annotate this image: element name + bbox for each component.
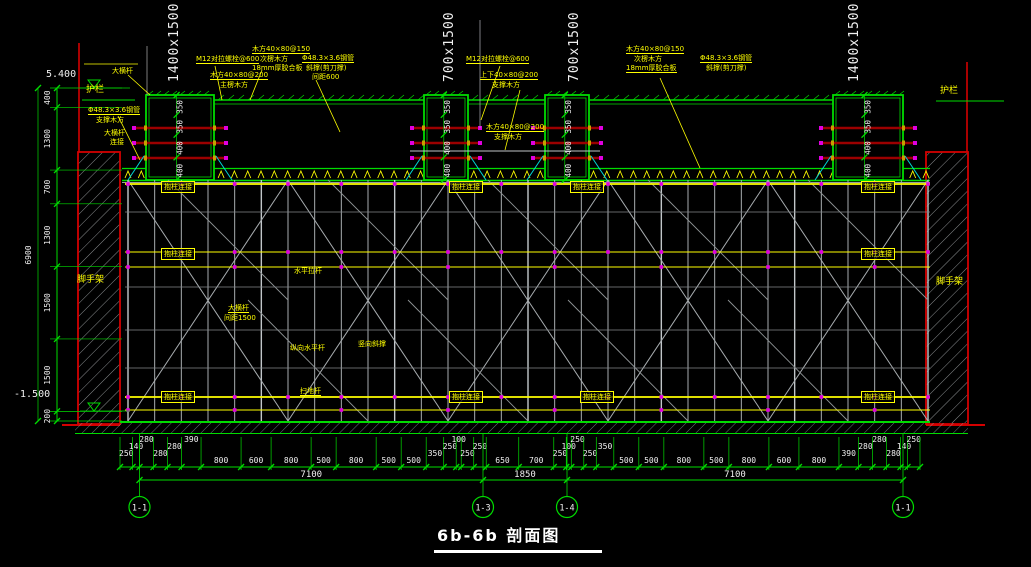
annotation-diag-brace-right: 斜撑(剪刀撑)	[706, 65, 746, 72]
drawing-title: 6b-6b 剖面图	[437, 528, 560, 545]
scaffold-wall-label-left: 脚手架	[77, 276, 104, 285]
dim-text: 350	[864, 100, 873, 114]
dim-text: 500	[644, 456, 659, 465]
dim-text: 600	[249, 456, 264, 465]
dim-text: 350	[564, 100, 573, 114]
guardrail-label-right: 护栏	[940, 87, 958, 96]
dim-text: 800	[812, 456, 827, 465]
annotation-sec-joist-sub-left: 次楞木方	[260, 56, 288, 63]
dim-text: 500	[316, 456, 331, 465]
column-tie-label: 抱柱连接	[449, 181, 483, 193]
title-underline	[434, 550, 602, 553]
annotation-main-joist-left: 木方40×80@200	[210, 72, 268, 80]
dim-text: 650	[495, 456, 510, 465]
dim-text: 350	[176, 100, 185, 114]
column-tie-label: 抱柱连接	[161, 181, 195, 193]
beam-size-label-1: 1400x1500	[168, 8, 182, 82]
dim-text: 1-1	[132, 504, 147, 514]
scaffold-wall-label-right: 脚手架	[936, 278, 963, 287]
dim-text: 700	[43, 180, 52, 195]
column-tie-label: 抱柱连接	[449, 391, 483, 403]
dim-text: 1300	[43, 129, 52, 148]
dim-text: 7100	[724, 470, 746, 480]
beam-size-label-4: 1400x1500	[848, 8, 862, 82]
annotation-plywood-left: 18mm厚胶合板	[252, 65, 303, 72]
column-tie-label: 抱柱连接	[161, 391, 195, 403]
dim-text: 400	[864, 163, 873, 177]
dim-text: 250	[473, 442, 488, 451]
dim-text: 350	[864, 119, 873, 133]
annotation-support-joist-inner: 支撑木方	[494, 134, 522, 141]
annotation-spacing-left: 间距600	[312, 74, 339, 81]
dim-text: 350	[443, 119, 452, 133]
dim-text: 350	[443, 100, 452, 114]
cad-drawing-canvas: 3503504004003503504004003503504004003503…	[0, 0, 1031, 567]
label-steel-pipe-wall: Φ48.3×3.6钢管	[88, 107, 140, 115]
dim-text: 250	[583, 449, 598, 458]
dim-text: 1-1	[895, 504, 910, 514]
annotation-diag-brace-left: 斜撑(剪刀撑)	[306, 65, 346, 72]
dim-text: 390	[184, 435, 199, 444]
column-tie-label: 抱柱连接	[161, 248, 195, 260]
label-big-ledger-wall: 大横杆	[104, 130, 125, 137]
dim-text: 280	[153, 449, 168, 458]
dim-text: 250	[570, 435, 585, 444]
dim-text: 800	[742, 456, 757, 465]
column-tie-label: 抱柱连接	[570, 181, 604, 193]
annotation-main-joist-sub-left: 主楞木方	[220, 82, 248, 89]
column-tie-label: 抱柱连接	[580, 391, 614, 403]
dim-text: 400	[443, 163, 452, 177]
dim-text: 600	[777, 456, 792, 465]
dim-text: 400	[176, 141, 185, 155]
annotation-tie-bolt-mid: M12对拉螺栓@600	[466, 56, 529, 64]
label-vertical-brace: 竖向斜撑	[358, 341, 386, 348]
dim-text: 1500	[43, 365, 52, 384]
annotation-updown-joist-mid: 上下40×80@200	[480, 72, 538, 80]
level-bottom: -1.500	[14, 390, 50, 401]
dim-text: 400	[176, 163, 185, 177]
dim-text: 500	[709, 456, 724, 465]
beam-size-label-2: 700x1500	[443, 8, 457, 82]
dim-text: 500	[406, 456, 421, 465]
dim-text: 1300	[43, 225, 52, 244]
column-tie-label: 抱柱连接	[861, 248, 895, 260]
annotation-steel-pipe-left: Φ48.3×3.6钢管	[302, 55, 354, 63]
annotation-sec-joist-right: 木方40×80@150	[626, 46, 684, 54]
dim-text: 1-4	[559, 504, 574, 514]
dim-text: 250	[907, 435, 922, 444]
dim-text: 6900	[24, 245, 33, 264]
dim-text: 700	[529, 456, 544, 465]
dim-text: 400	[43, 90, 52, 105]
beam-size-label-3: 700x1500	[568, 8, 582, 82]
annotation-support-joist-mid: 支撑木方	[492, 82, 520, 89]
dim-text: 350	[176, 119, 185, 133]
dim-text: 7100	[300, 470, 322, 480]
label-ledger-spacing: 间距1500	[224, 315, 256, 322]
dim-text: 390	[841, 449, 856, 458]
dim-text: 400	[864, 141, 873, 155]
dim-text: 1-3	[475, 504, 490, 514]
dim-text: 280	[139, 435, 154, 444]
annotation-steel-pipe-right: Φ48.3×3.6钢管	[700, 55, 752, 63]
annotation-main-joist-inner: 木方40×80@200	[486, 124, 544, 132]
dim-text: 350	[428, 449, 443, 458]
label-big-ledger-mid: 大横杆	[228, 305, 249, 313]
dim-text: 400	[564, 163, 573, 177]
dim-text: 350	[598, 442, 613, 451]
label-support-joist-wall: 支撑木方	[96, 117, 124, 124]
dim-text: 800	[284, 456, 299, 465]
dim-text: 500	[619, 456, 634, 465]
label-big-ledger-top: 大横杆	[112, 68, 133, 75]
column-tie-label: 抱柱连接	[861, 391, 895, 403]
dim-text: 350	[564, 119, 573, 133]
label-horizontal-tie: 水平拉杆	[294, 268, 322, 275]
label-connect-wall: 连接	[110, 139, 124, 146]
dim-text: 800	[349, 456, 364, 465]
guardrail-label-left: 护栏	[86, 86, 104, 95]
dim-text: 280	[167, 442, 182, 451]
annotation-tie-bolt-left: M12对拉螺栓@600	[196, 56, 259, 64]
annotation-plywood-right: 18mm厚胶合板	[626, 65, 677, 73]
column-tie-label: 抱柱连接	[861, 181, 895, 193]
dim-text: 280	[872, 435, 887, 444]
dim-text: 800	[214, 456, 229, 465]
dim-text: 1500	[43, 293, 52, 312]
dim-text: 1850	[514, 470, 536, 480]
dim-text: 800	[677, 456, 692, 465]
level-top: 5.400	[46, 70, 76, 81]
annotation-sec-joist-sub-right: 次楞木方	[634, 56, 662, 63]
label-longitudinal-rod: 纵向水平杆	[290, 345, 325, 352]
label-sweep-rod: 扫地杆	[300, 388, 321, 396]
dim-text: 400	[443, 141, 452, 155]
dim-text: 280	[858, 442, 873, 451]
dim-text: 100	[451, 435, 466, 444]
dim-text: 400	[564, 141, 573, 155]
dim-text: 500	[381, 456, 396, 465]
